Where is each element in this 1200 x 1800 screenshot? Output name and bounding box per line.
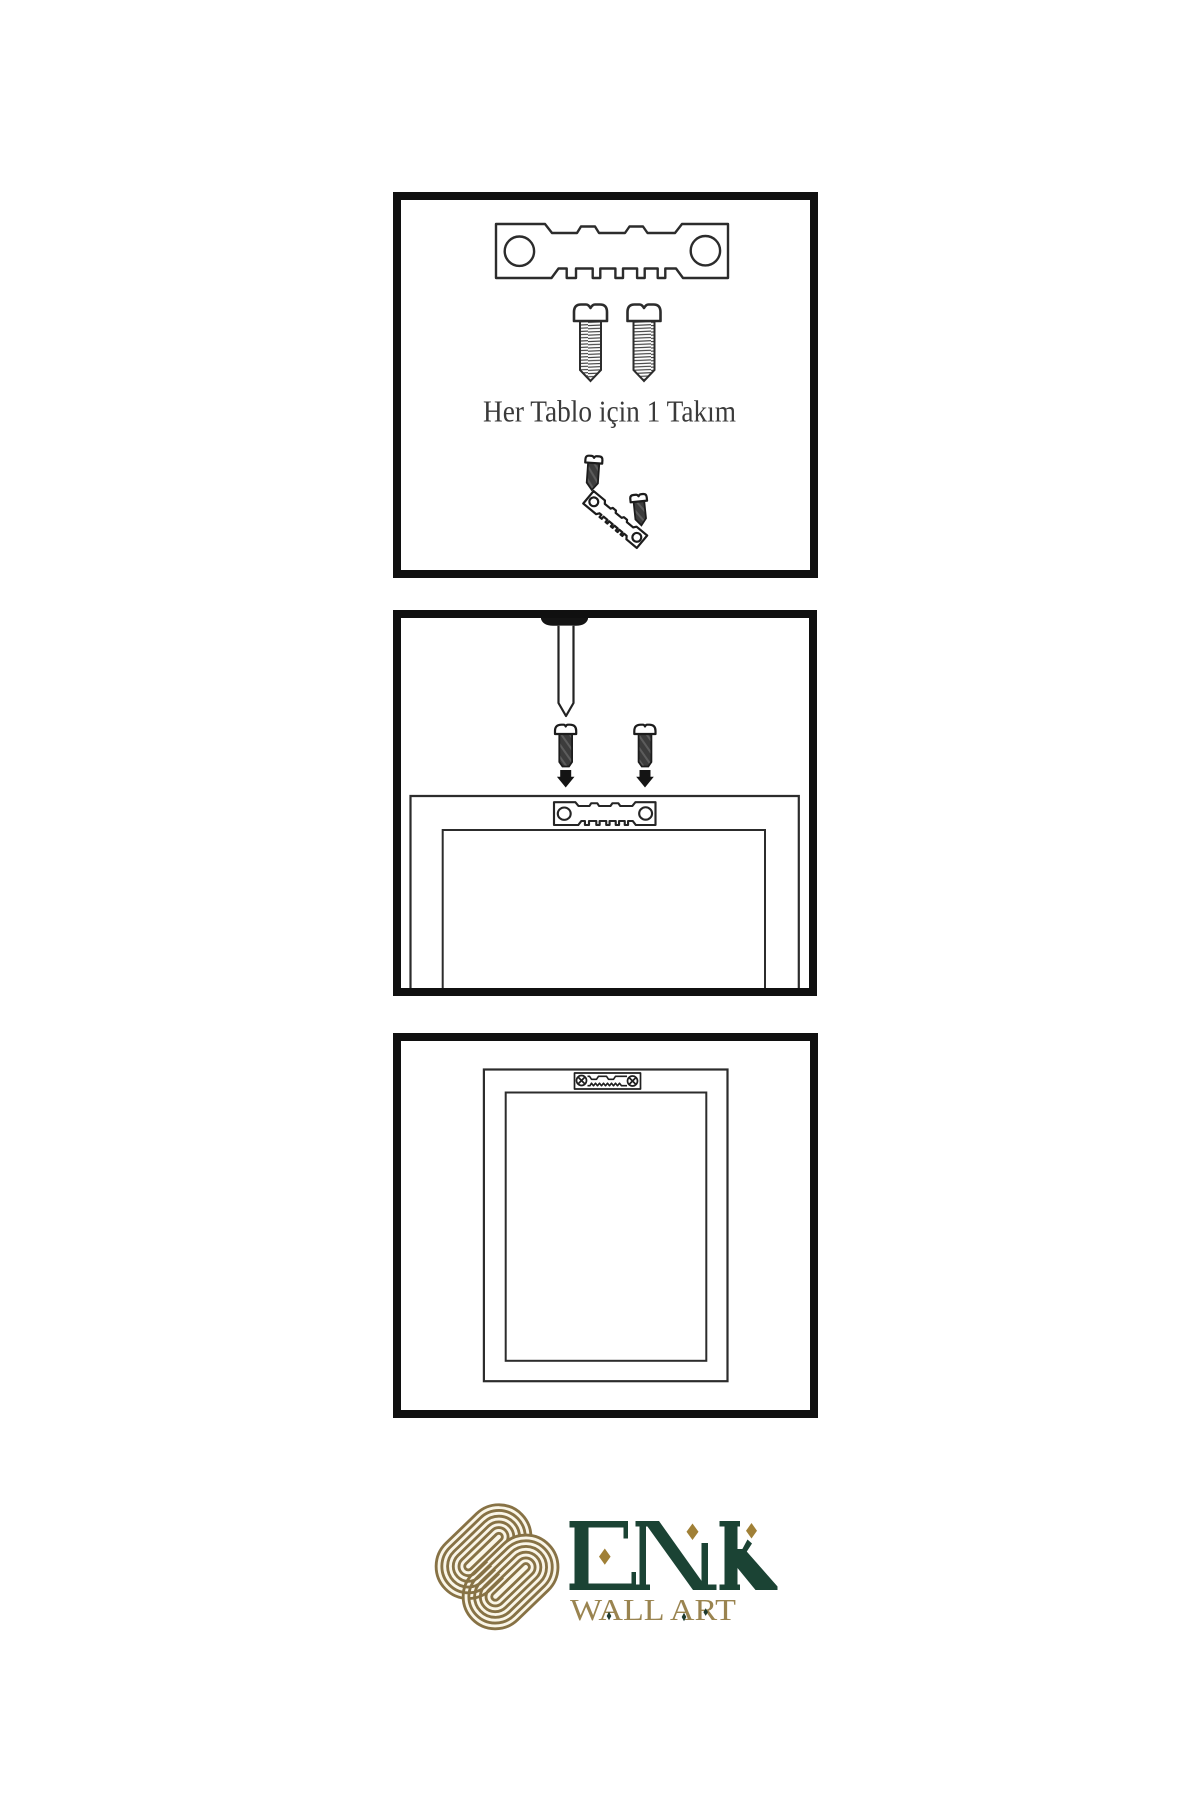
svg-text:WALL ART: WALL ART <box>570 1592 736 1627</box>
svg-text:Her Tablo için 1 Takım: Her Tablo için 1 Takım <box>483 394 736 429</box>
